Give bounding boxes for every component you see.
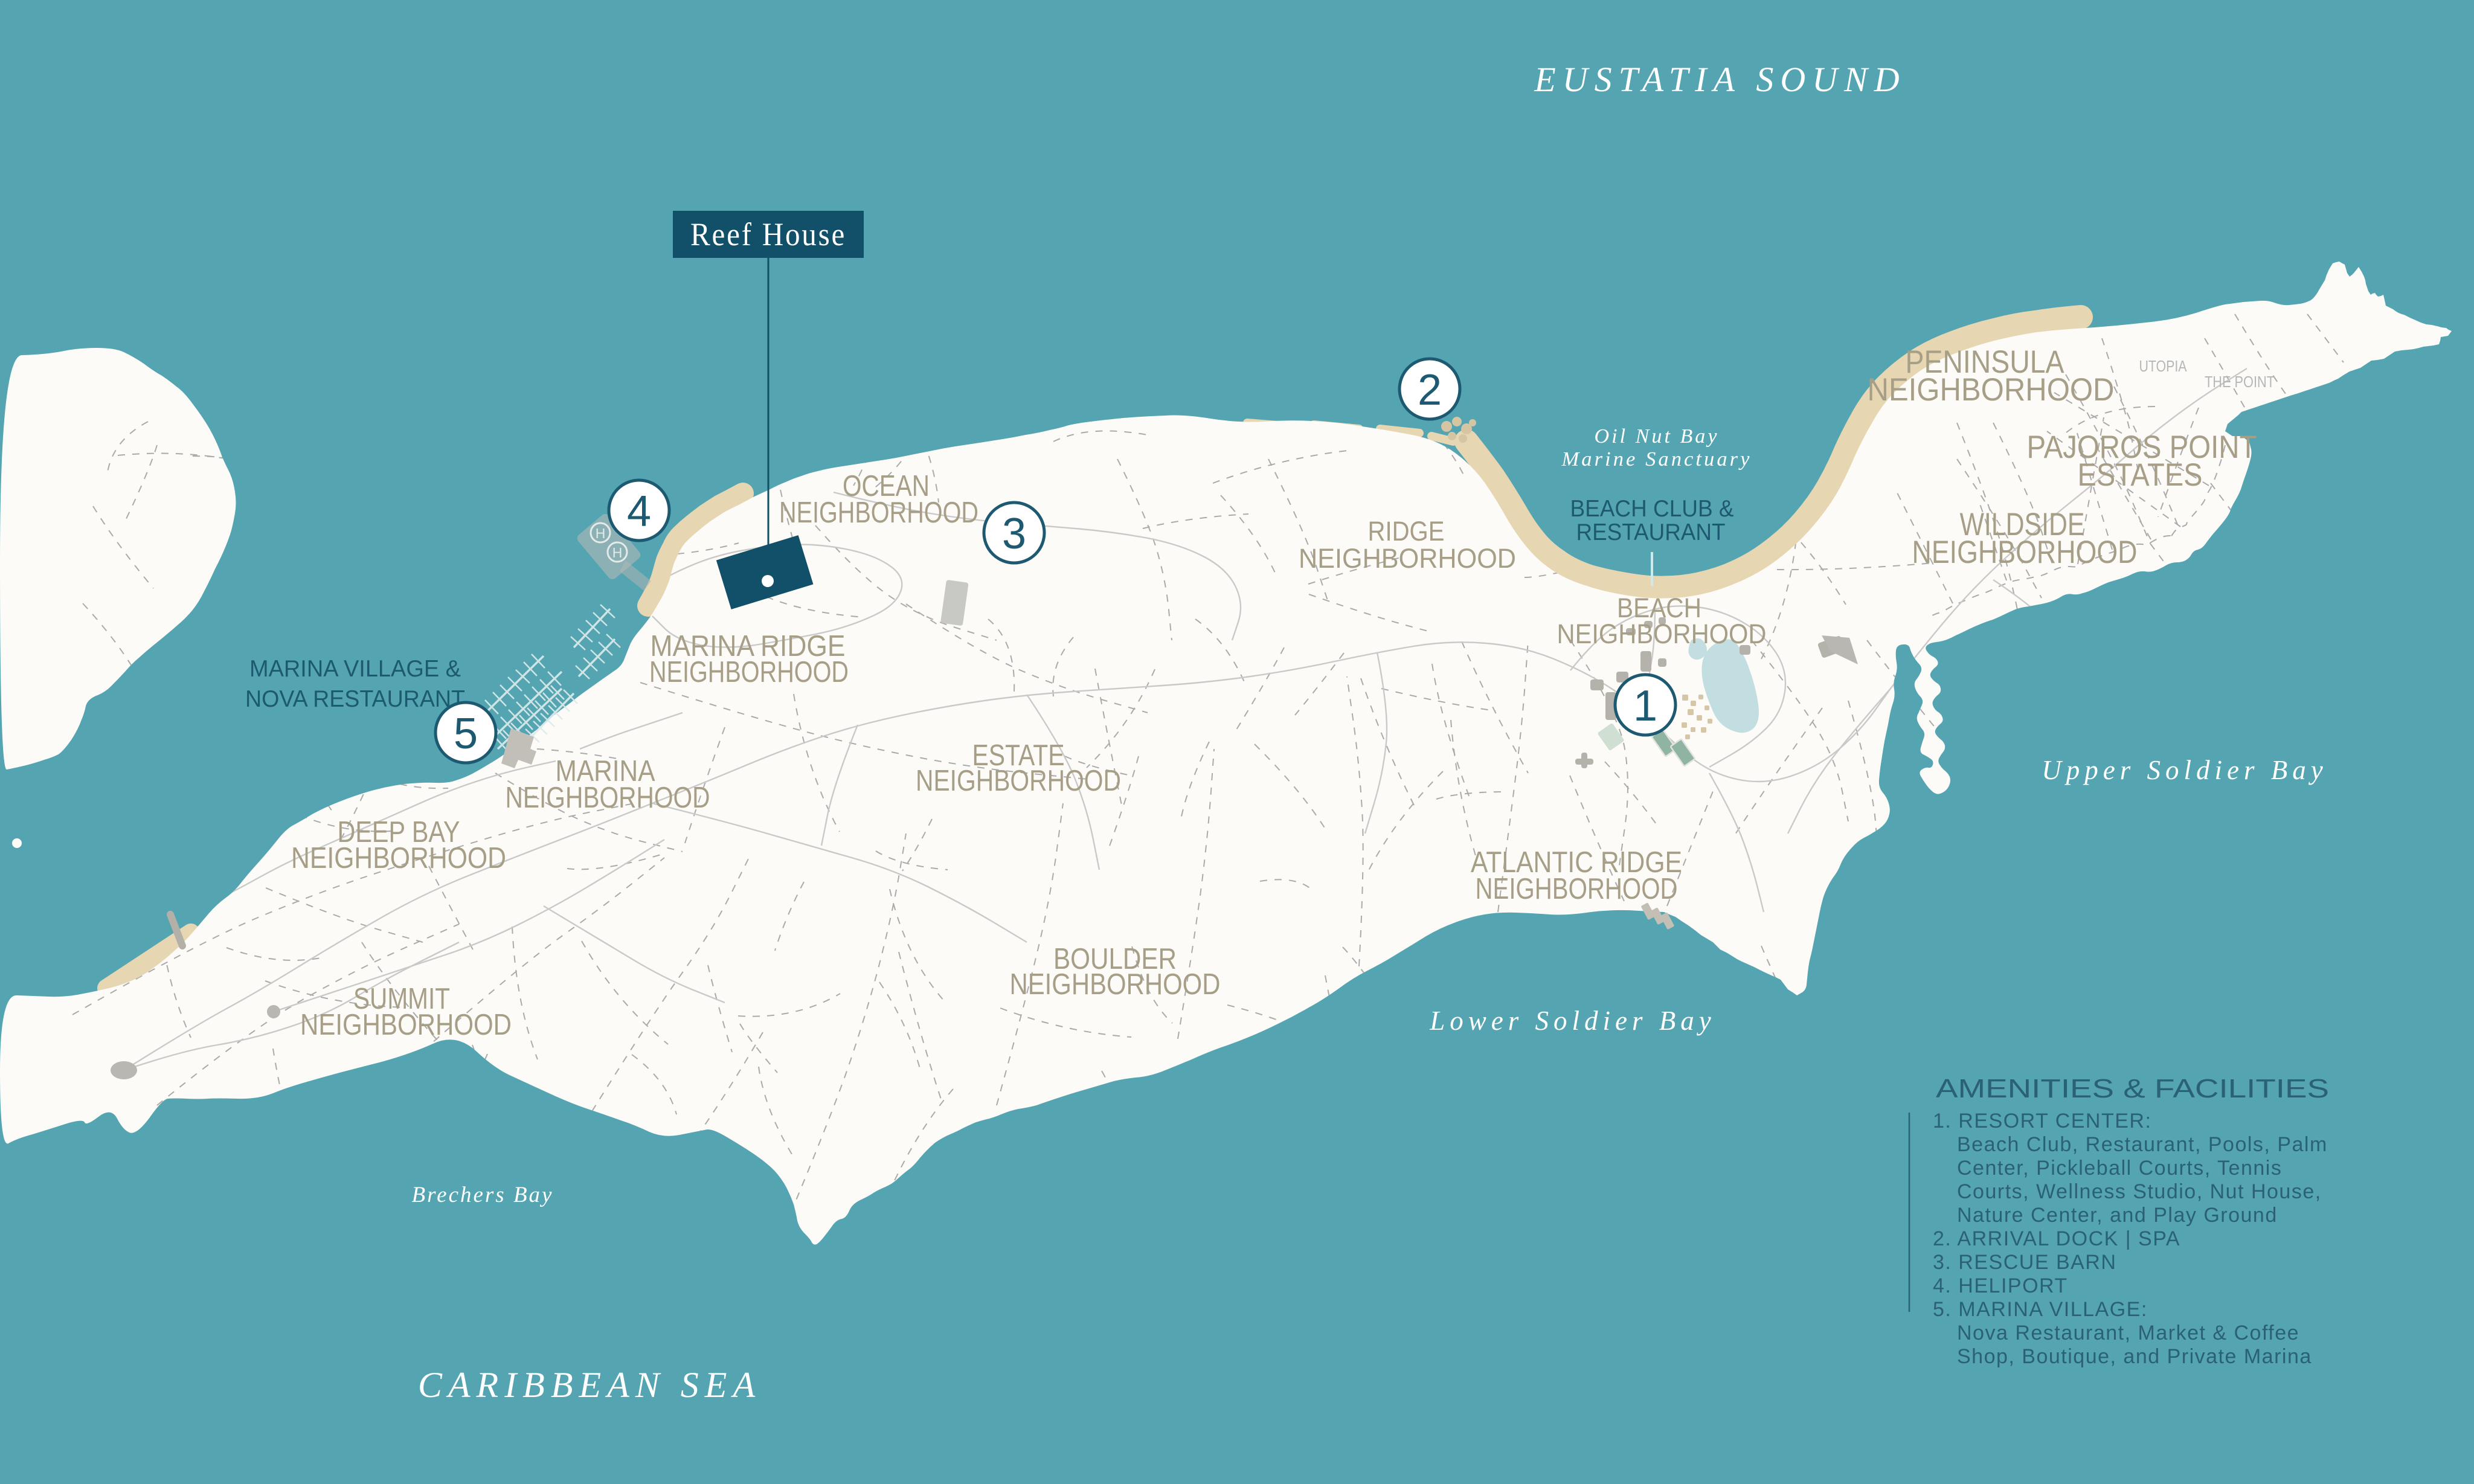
svg-text:NEIGHBORHOOD: NEIGHBORHOOD	[1868, 372, 2115, 408]
svg-text:H: H	[596, 525, 606, 541]
svg-text:3: 3	[1002, 510, 1026, 558]
svg-text:Center, Pickleball Courts, Ten: Center, Pickleball Courts, Tennis	[1957, 1157, 2282, 1180]
svg-text:Upper Soldier Bay: Upper Soldier Bay	[2042, 755, 2327, 785]
svg-text:NEIGHBORHOOD: NEIGHBORHOOD	[1912, 535, 2138, 570]
svg-text:H: H	[612, 545, 623, 561]
svg-text:Reef House: Reef House	[690, 216, 846, 252]
svg-text:Courts, Wellness Studio, Nut H: Courts, Wellness Studio, Nut House,	[1957, 1180, 2322, 1203]
svg-text:NEIGHBORHOOD: NEIGHBORHOOD	[649, 656, 849, 689]
svg-text:1. RESORT CENTER:: 1. RESORT CENTER:	[1933, 1110, 2151, 1132]
svg-text:BEACH CLUB &: BEACH CLUB &	[1570, 496, 1734, 522]
svg-text:CARIBBEAN SEA: CARIBBEAN SEA	[418, 1365, 761, 1405]
svg-text:5: 5	[454, 710, 478, 758]
svg-text:ESTATES: ESTATES	[2078, 457, 2203, 493]
svg-text:2: 2	[1418, 366, 1442, 414]
svg-text:5. MARINA VILLAGE:: 5. MARINA VILLAGE:	[1933, 1298, 2148, 1321]
svg-text:MARINA VILLAGE &: MARINA VILLAGE &	[249, 656, 461, 682]
svg-text:NEIGHBORHOOD: NEIGHBORHOOD	[916, 765, 1121, 797]
svg-text:Beach Club, Restaurant, Pools,: Beach Club, Restaurant, Pools, Palm	[1957, 1133, 2328, 1156]
svg-text:4: 4	[627, 487, 651, 536]
svg-text:NEIGHBORHOOD: NEIGHBORHOOD	[779, 496, 978, 529]
svg-text:2. ARRIVAL DOCK | SPA: 2. ARRIVAL DOCK | SPA	[1933, 1227, 2180, 1250]
svg-text:1: 1	[1633, 682, 1657, 730]
svg-text:NEIGHBORHOOD: NEIGHBORHOOD	[506, 782, 710, 814]
svg-text:THE POINT: THE POINT	[2205, 373, 2275, 391]
svg-text:Marine Sanctuary: Marine Sanctuary	[1561, 448, 1752, 471]
svg-text:Nova Restaurant, Market & Coff: Nova Restaurant, Market & Coffee	[1957, 1322, 2299, 1344]
svg-text:Shop, Boutique, and Private Ma: Shop, Boutique, and Private Marina	[1957, 1345, 2312, 1368]
svg-text:NEIGHBORHOOD: NEIGHBORHOOD	[1299, 543, 1516, 574]
svg-text:RESTAURANT: RESTAURANT	[1576, 519, 1726, 545]
svg-text:NOVA RESTAURANT: NOVA RESTAURANT	[245, 686, 465, 712]
svg-text:Nature Center, and Play Ground: Nature Center, and Play Ground	[1957, 1204, 2278, 1227]
svg-text:AMENITIES & FACILITIES: AMENITIES & FACILITIES	[1936, 1074, 2329, 1103]
svg-text:NEIGHBORHOOD: NEIGHBORHOOD	[1557, 618, 1767, 649]
svg-text:EUSTATIA SOUND: EUSTATIA SOUND	[1534, 60, 1906, 99]
svg-text:Oil Nut Bay: Oil Nut Bay	[1595, 425, 1720, 448]
svg-text:UTOPIA: UTOPIA	[2139, 357, 2188, 375]
svg-text:Brechers Bay: Brechers Bay	[412, 1183, 554, 1207]
svg-text:NEIGHBORHOOD: NEIGHBORHOOD	[1010, 968, 1221, 1001]
svg-text:NEIGHBORHOOD: NEIGHBORHOOD	[291, 842, 506, 875]
svg-text:4. HELIPORT: 4. HELIPORT	[1933, 1274, 2068, 1297]
svg-text:NEIGHBORHOOD: NEIGHBORHOOD	[1476, 873, 1678, 905]
svg-text:3. RESCUE BARN: 3. RESCUE BARN	[1933, 1251, 2116, 1274]
svg-text:Lower Soldier Bay: Lower Soldier Bay	[1429, 1006, 1715, 1036]
svg-text:NEIGHBORHOOD: NEIGHBORHOOD	[300, 1009, 512, 1041]
svg-text:RIDGE: RIDGE	[1368, 516, 1445, 547]
